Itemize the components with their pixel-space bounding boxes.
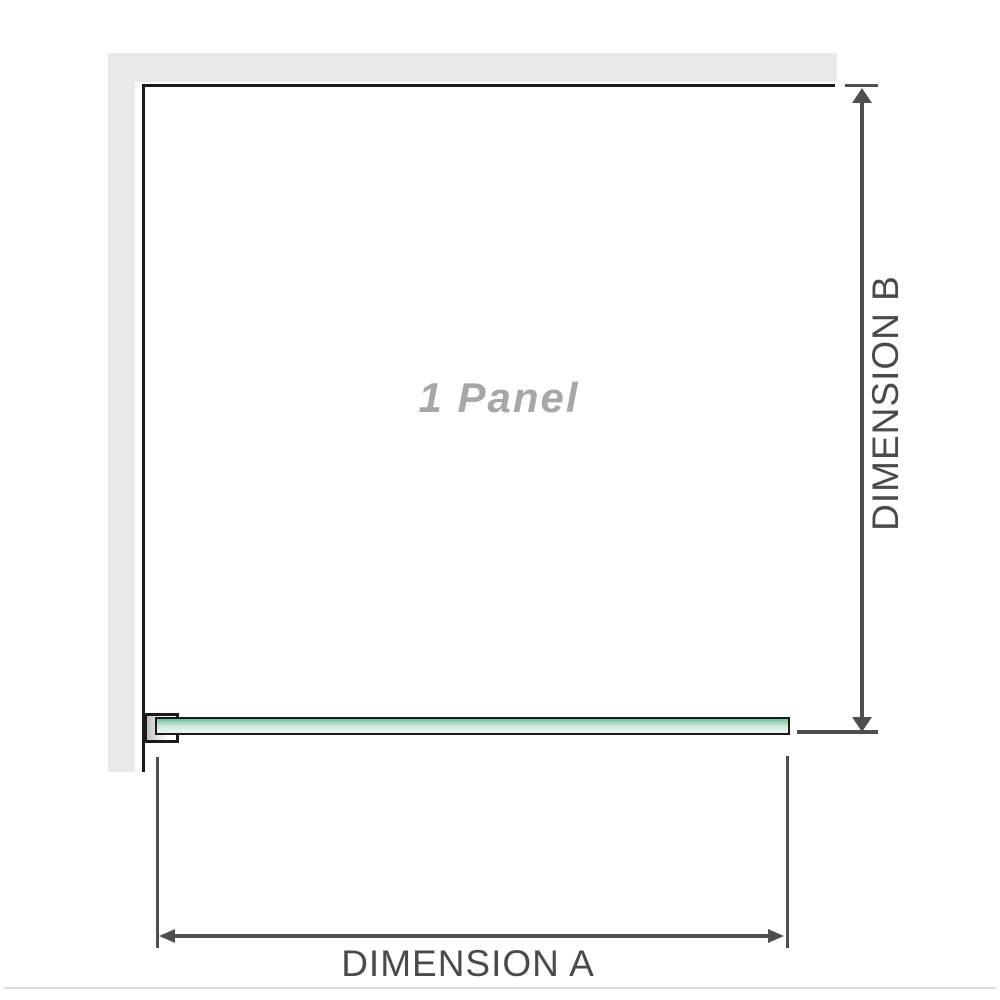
dimension-a-arrowhead-left-icon: [159, 929, 175, 943]
dimension-a-label: DIMENSION A: [341, 943, 595, 985]
glass-panel-bar: [155, 717, 790, 735]
dimension-b-line: [860, 98, 864, 722]
dimension-b-arrowhead-down-icon: [852, 717, 872, 732]
dimension-a-line: [170, 934, 770, 938]
wall-left-segment: [108, 53, 135, 772]
panel-count-label: 1 Panel: [418, 374, 579, 422]
dimension-a-arrowhead-right-icon: [768, 929, 784, 943]
dimension-a-extension-right: [786, 756, 789, 948]
dimension-b-tick-top: [845, 84, 878, 87]
shower-screen-dimension-diagram: 1 Panel DIMENSION B DIMENSION A: [0, 0, 1000, 1000]
page-bottom-rule: [4, 987, 996, 989]
dimension-b-arrowhead-up-icon: [852, 88, 872, 103]
panel-outline-left: [142, 84, 145, 772]
panel-outline-top: [142, 84, 835, 87]
dimension-b-label: DIMENSION B: [865, 275, 907, 531]
wall-top-segment: [108, 53, 837, 82]
dimension-a-extension-left: [156, 757, 159, 948]
